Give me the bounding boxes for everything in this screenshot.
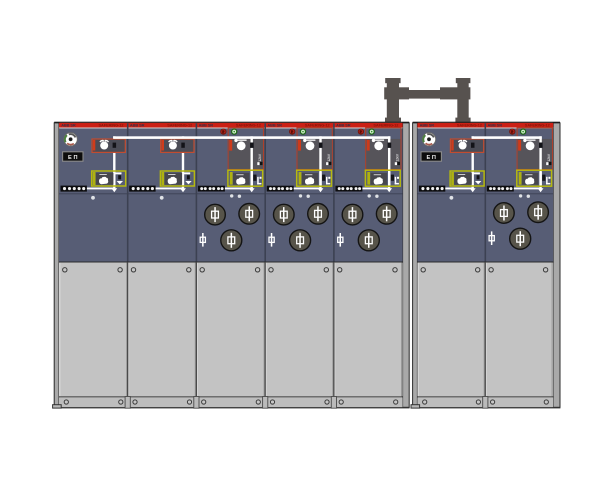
svg-text:SAFERING-12: SAFERING-12	[99, 123, 125, 128]
svg-text:ABB SR: ABB SR	[420, 123, 435, 128]
svg-text:12kV: 12kV	[258, 153, 262, 162]
svg-text:ΕΠ: ΕΠ	[68, 155, 78, 161]
svg-text:SAFERING-12: SAFERING-12	[236, 123, 262, 128]
svg-text:SAFERING-12: SAFERING-12	[457, 123, 483, 128]
svg-text:ABB SR: ABB SR	[130, 123, 145, 128]
svg-text:12kV: 12kV	[327, 153, 331, 162]
svg-text:SAFERING-12: SAFERING-12	[525, 123, 551, 128]
svg-text:ABB SR: ABB SR	[267, 123, 282, 128]
svg-text:SAFERING-12: SAFERING-12	[305, 123, 331, 128]
svg-text:ABB SR: ABB SR	[199, 123, 214, 128]
svg-text:12kV: 12kV	[547, 153, 551, 162]
svg-text:SAFERING-12: SAFERING-12	[167, 123, 193, 128]
svg-text:ΕΠ: ΕΠ	[426, 155, 436, 161]
svg-text:ABB SR: ABB SR	[336, 123, 351, 128]
svg-text:SAFERING-12: SAFERING-12	[373, 123, 399, 128]
svg-text:ABB SR: ABB SR	[61, 123, 76, 128]
svg-text:ABB SR: ABB SR	[488, 123, 503, 128]
svg-text:12kV: 12kV	[396, 153, 400, 162]
